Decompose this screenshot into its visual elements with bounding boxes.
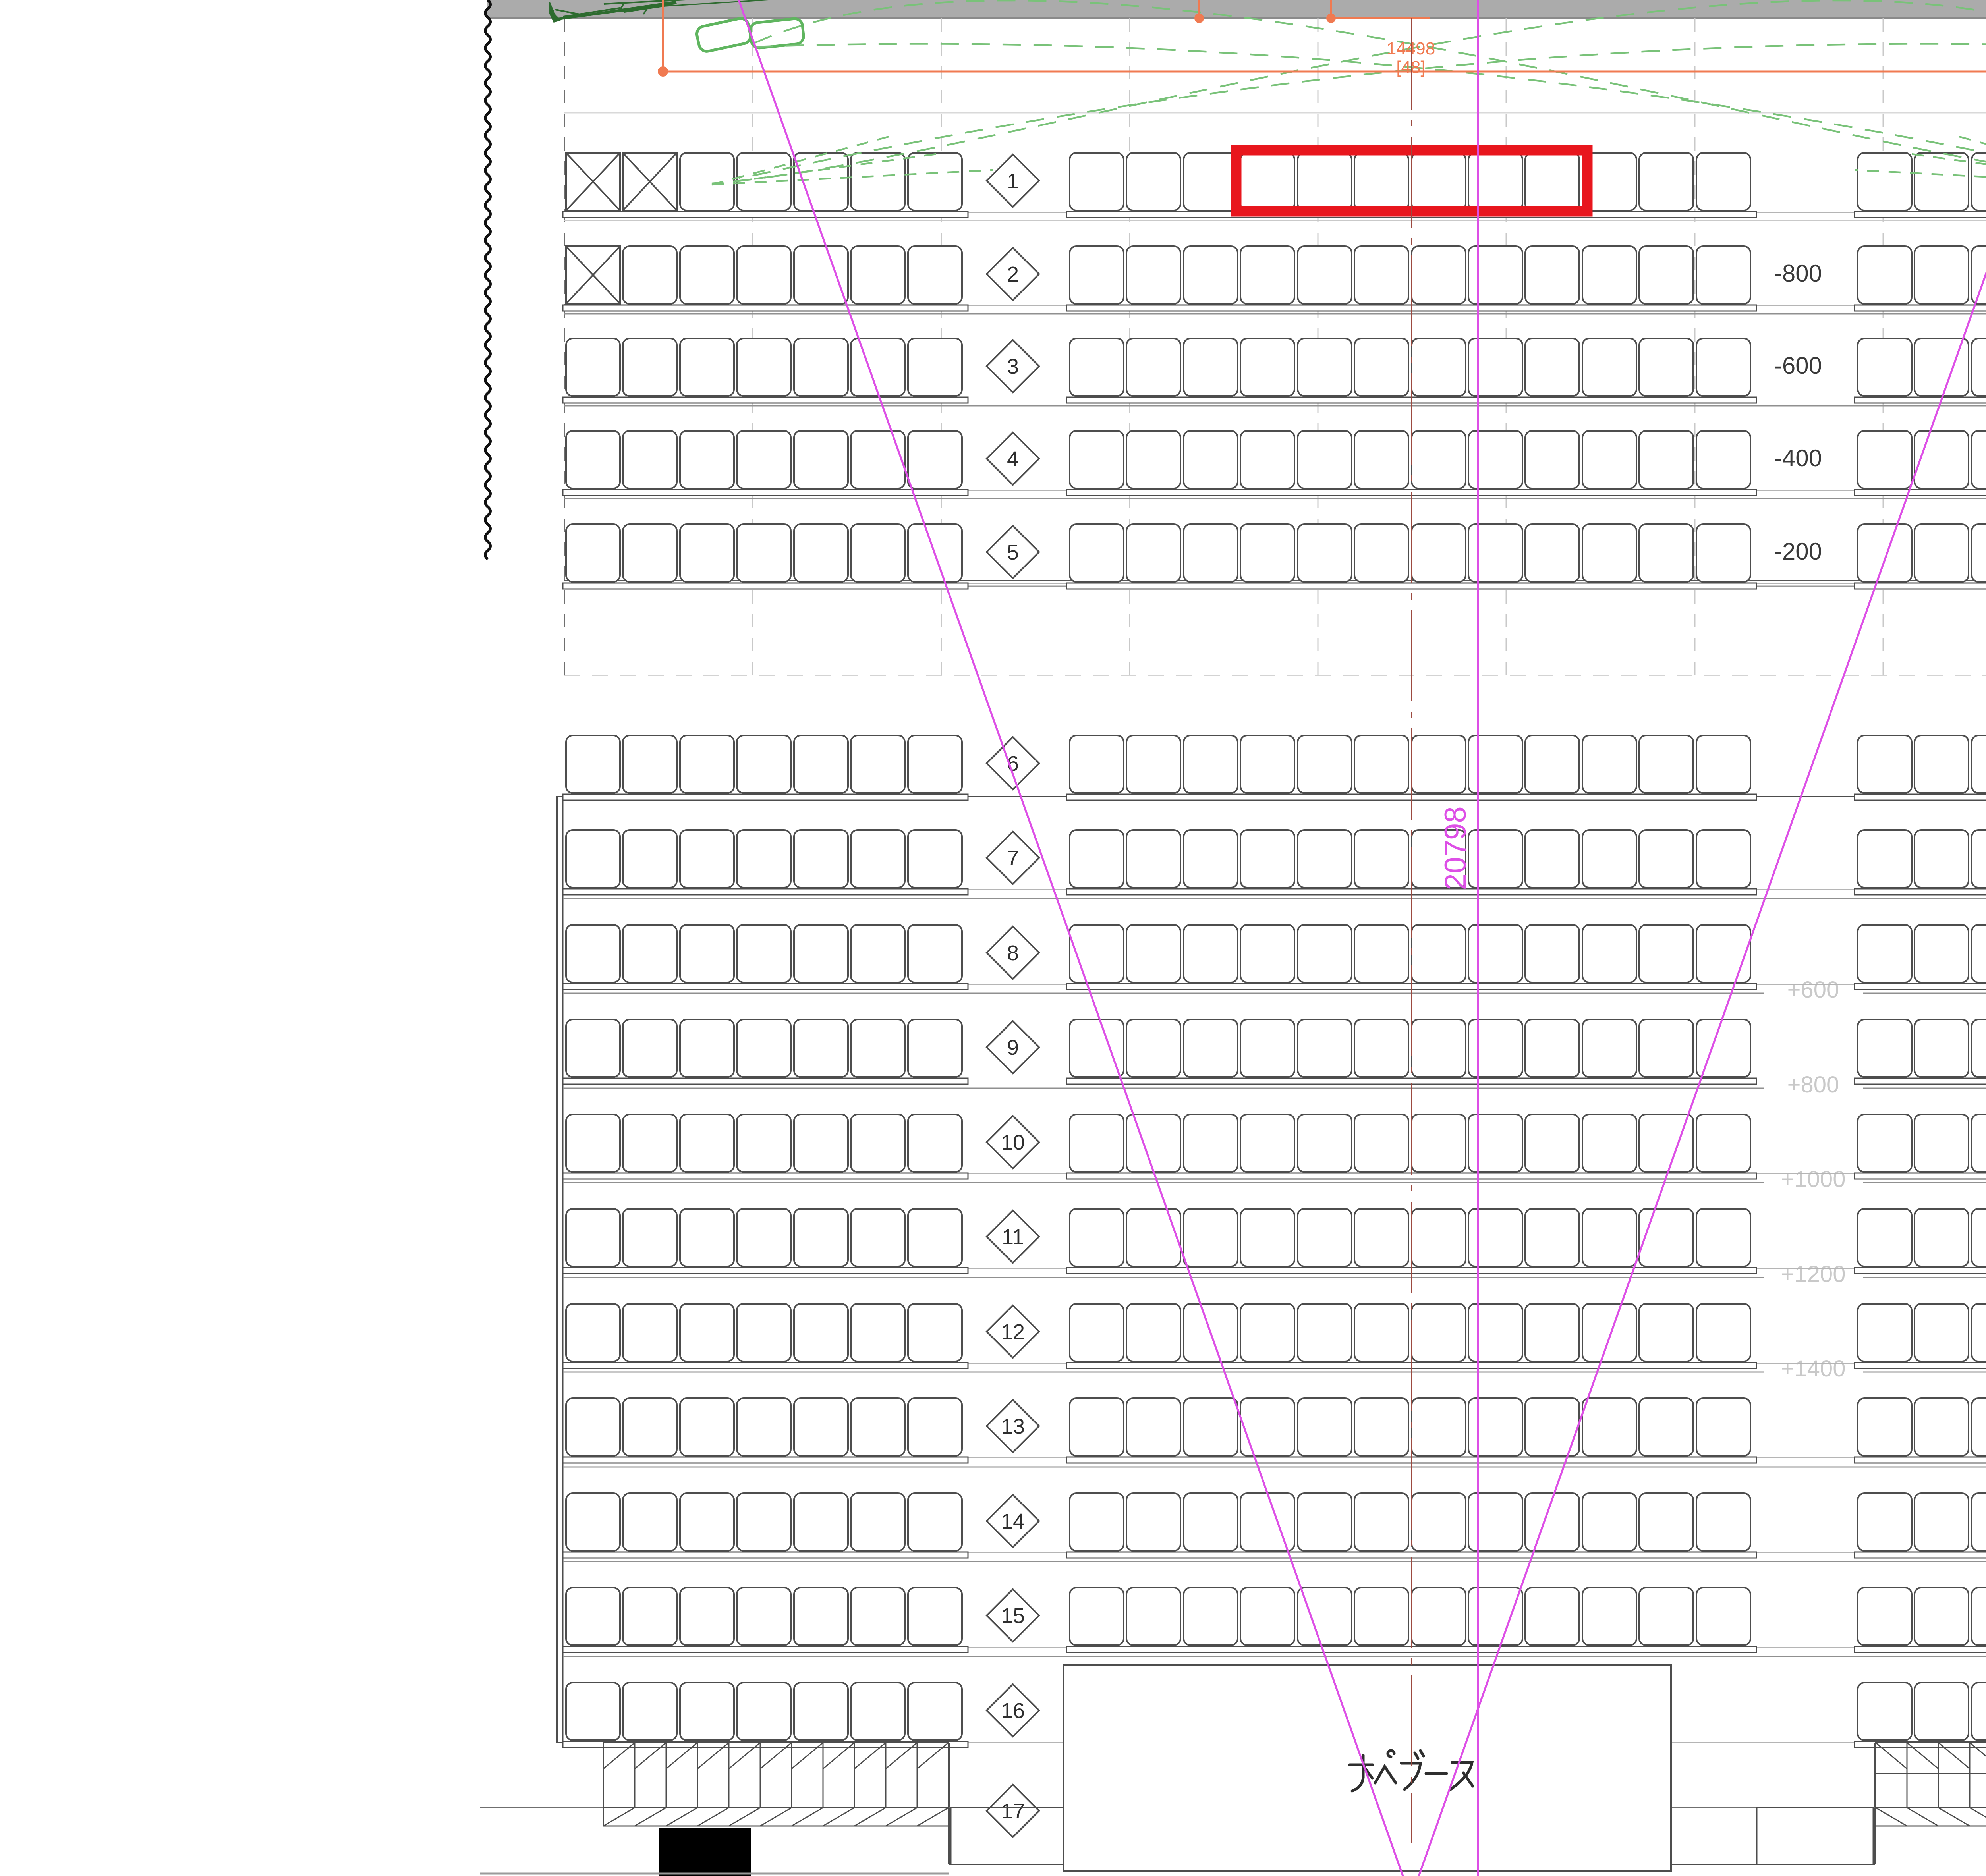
svg-text:17: 17 <box>1001 1799 1025 1823</box>
svg-text:+1200: +1200 <box>1781 1261 1846 1287</box>
svg-text:3: 3 <box>1007 355 1019 378</box>
svg-text:+800: +800 <box>1787 1072 1839 1098</box>
svg-text:-200: -200 <box>1774 538 1822 565</box>
svg-text:-600: -600 <box>1774 352 1822 379</box>
svg-text:11: 11 <box>1002 1225 1024 1249</box>
svg-text:8: 8 <box>1007 941 1019 965</box>
svg-text:+1000: +1000 <box>1781 1166 1846 1192</box>
svg-text:12: 12 <box>1001 1320 1025 1344</box>
svg-text:20798: 20798 <box>1439 806 1472 890</box>
svg-text:10: 10 <box>1001 1131 1025 1154</box>
svg-text:7: 7 <box>1007 846 1019 870</box>
svg-text:9: 9 <box>1007 1036 1019 1060</box>
svg-text:16: 16 <box>1001 1699 1025 1723</box>
svg-text:4: 4 <box>1007 447 1019 471</box>
svg-text:+1400: +1400 <box>1781 1356 1846 1382</box>
svg-text:15: 15 <box>1001 1604 1025 1628</box>
svg-text:13: 13 <box>1001 1415 1025 1438</box>
svg-text:5: 5 <box>1007 540 1019 564</box>
svg-text:1: 1 <box>1007 169 1019 193</box>
svg-text:14: 14 <box>1001 1509 1025 1533</box>
svg-text:-400: -400 <box>1774 445 1822 471</box>
svg-text:-800: -800 <box>1774 260 1822 287</box>
svg-text:+600: +600 <box>1787 977 1839 1003</box>
svg-text:2: 2 <box>1007 262 1019 286</box>
